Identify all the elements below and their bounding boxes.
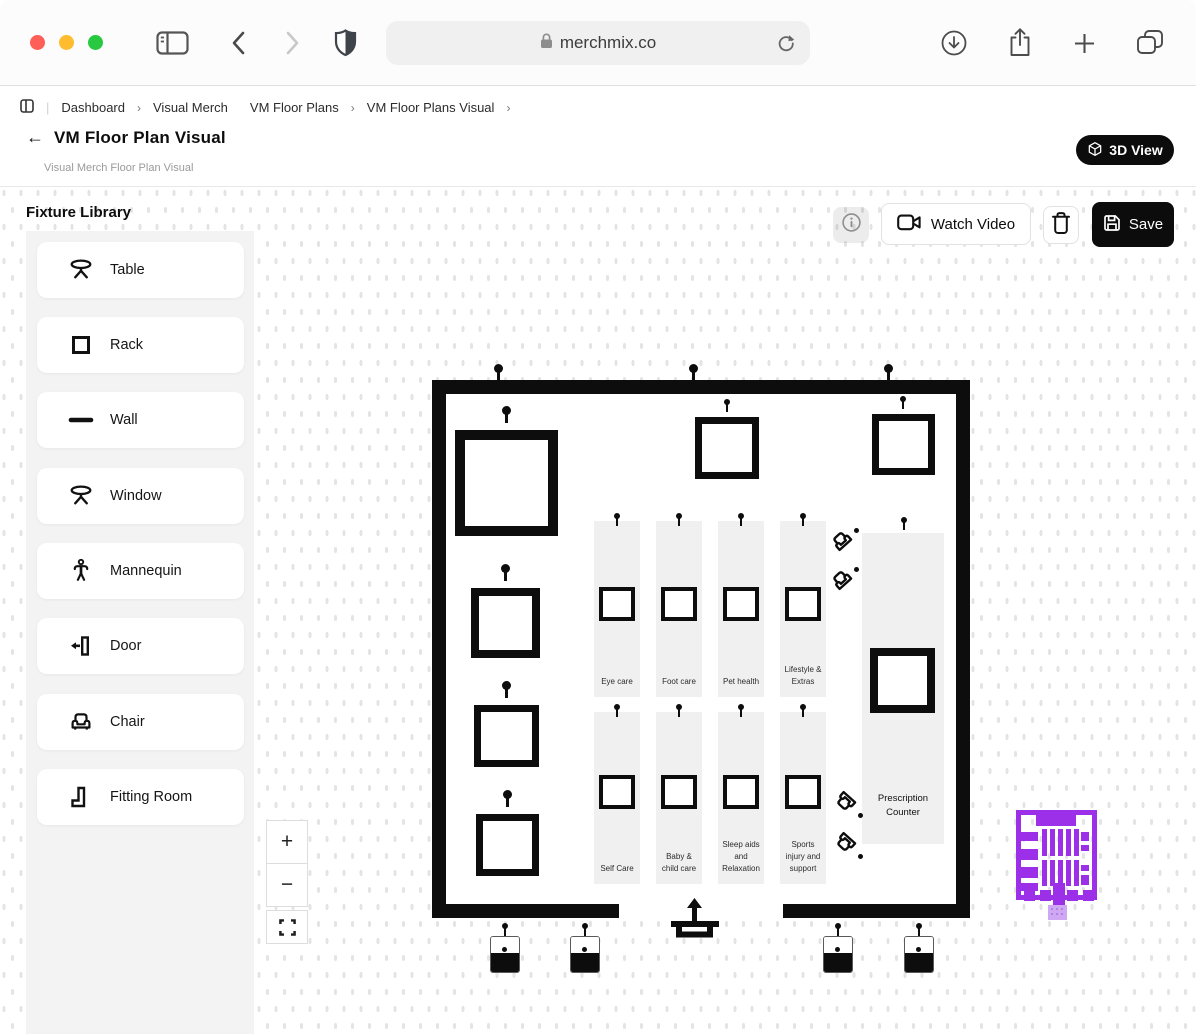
fixture-label: Chair bbox=[110, 714, 145, 730]
fixture-label: Rack bbox=[110, 337, 143, 353]
delete-button[interactable] bbox=[1043, 206, 1079, 244]
rack-fixture[interactable] bbox=[695, 417, 759, 479]
rack-fixture[interactable] bbox=[599, 587, 635, 621]
privacy-shield-icon[interactable] bbox=[334, 29, 357, 62]
fixture-pin[interactable] bbox=[916, 923, 922, 929]
breadcrumb-dashboard[interactable]: Dashboard bbox=[61, 100, 125, 115]
chair-fixture[interactable] bbox=[830, 530, 856, 556]
aisle-label: Self Care bbox=[595, 863, 639, 884]
wall-fixture-bottom-left[interactable] bbox=[432, 904, 619, 918]
door-icon bbox=[68, 634, 94, 658]
prescription-counter-label: Prescription Counter bbox=[861, 792, 945, 820]
canvas[interactable]: Fixture Library Table Rack Wall Window bbox=[0, 187, 1196, 1034]
table-icon bbox=[68, 257, 94, 283]
chevron-right-icon: › bbox=[351, 101, 355, 115]
back-arrow-icon[interactable]: ← bbox=[26, 127, 44, 148]
rack-fixture[interactable] bbox=[474, 705, 539, 767]
aisle-label: Sleep aids and Relaxation bbox=[719, 839, 763, 884]
url-text: merchmix.co bbox=[560, 33, 656, 53]
fixture-pin[interactable] bbox=[901, 517, 907, 523]
fixture-pin[interactable] bbox=[738, 704, 744, 710]
zoom-window-button[interactable] bbox=[88, 35, 103, 50]
rack-fixture[interactable] bbox=[785, 587, 821, 621]
aisle-label: Baby & child care bbox=[657, 851, 701, 884]
info-button[interactable] bbox=[833, 207, 869, 243]
chevron-right-icon: › bbox=[506, 101, 510, 115]
fixture-card-fitting-room[interactable]: Fitting Room bbox=[37, 769, 244, 825]
fixture-pin[interactable] bbox=[614, 513, 620, 519]
fixture-label: Table bbox=[110, 262, 145, 278]
rack-fixture[interactable] bbox=[599, 775, 635, 809]
fixture-pin[interactable] bbox=[835, 923, 841, 929]
door-fixture-entrance[interactable] bbox=[668, 896, 722, 945]
wall-fixture-top[interactable] bbox=[432, 380, 970, 394]
fixture-pin[interactable] bbox=[614, 704, 620, 710]
save-label: Save bbox=[1129, 216, 1163, 233]
save-button[interactable]: Save bbox=[1092, 202, 1174, 247]
fixture-pin[interactable] bbox=[501, 564, 510, 573]
fixture-pin[interactable] bbox=[494, 364, 503, 373]
rack-fixture[interactable] bbox=[661, 587, 697, 621]
address-bar[interactable]: merchmix.co bbox=[386, 21, 810, 65]
fixture-pin bbox=[858, 854, 863, 859]
watch-video-button[interactable]: Watch Video bbox=[881, 203, 1031, 245]
chair-icon bbox=[68, 710, 94, 734]
window-fixture[interactable] bbox=[904, 936, 934, 973]
rack-fixture[interactable] bbox=[661, 775, 697, 809]
zoom-in-button[interactable]: + bbox=[266, 820, 308, 864]
chair-fixture[interactable] bbox=[834, 831, 860, 857]
rack-fixture[interactable] bbox=[870, 648, 935, 713]
breadcrumb-visual-merch[interactable]: Visual Merch bbox=[153, 100, 228, 115]
fixture-pin bbox=[854, 528, 859, 533]
aisle-shelf[interactable]: Sports injury and support bbox=[780, 712, 826, 884]
wall-icon bbox=[68, 408, 94, 432]
fixture-pin[interactable] bbox=[884, 364, 893, 373]
fixture-pin[interactable] bbox=[502, 406, 511, 415]
chair-fixture[interactable] bbox=[834, 790, 860, 816]
wall-fixture-right[interactable] bbox=[956, 380, 970, 918]
wall-fixture-bottom-right[interactable] bbox=[783, 904, 970, 918]
forward-icon[interactable] bbox=[282, 30, 302, 61]
rack-fixture[interactable] bbox=[471, 588, 540, 658]
rack-fixture[interactable] bbox=[455, 430, 558, 536]
fixture-pin[interactable] bbox=[738, 513, 744, 519]
fixture-pin bbox=[854, 567, 859, 572]
chair-fixture[interactable] bbox=[830, 569, 856, 595]
aisle-label: Foot care bbox=[657, 676, 701, 697]
fixture-label: Door bbox=[110, 638, 141, 654]
close-window-button[interactable] bbox=[30, 35, 45, 50]
fixture-card-mannequin[interactable]: Mannequin bbox=[37, 543, 244, 599]
fixture-card-door[interactable]: Door bbox=[37, 618, 244, 674]
fixture-library-title: Fixture Library bbox=[26, 204, 131, 221]
aisle-label: Lifestyle & Extras bbox=[781, 664, 825, 697]
save-icon bbox=[1103, 214, 1121, 236]
window-fixture[interactable] bbox=[490, 936, 520, 973]
aisle-shelf[interactable]: Eye care bbox=[594, 521, 640, 697]
cube-icon bbox=[1087, 141, 1103, 160]
fixture-pin[interactable] bbox=[502, 681, 511, 690]
breadcrumb-vm-floor-plans-visual[interactable]: VM Floor Plans Visual bbox=[367, 100, 495, 115]
sidebar-toggle-icon[interactable] bbox=[156, 31, 189, 60]
tab-overview-icon[interactable] bbox=[1136, 29, 1164, 60]
aisle-shelf[interactable]: Foot care bbox=[656, 521, 702, 697]
chevron-right-icon: › bbox=[137, 101, 141, 115]
fixture-card-table[interactable]: Table bbox=[37, 242, 244, 298]
info-icon bbox=[841, 212, 862, 238]
window-icon bbox=[68, 483, 94, 509]
fixture-card-chair[interactable]: Chair bbox=[37, 694, 244, 750]
fixture-pin[interactable] bbox=[582, 923, 588, 929]
zoom-out-button[interactable]: − bbox=[266, 863, 308, 907]
zoom-controls: + − bbox=[266, 820, 308, 944]
rack-icon bbox=[68, 333, 94, 357]
fixture-pin[interactable] bbox=[724, 399, 730, 405]
back-icon[interactable] bbox=[229, 30, 249, 61]
fixture-pin[interactable] bbox=[689, 364, 698, 373]
fixture-card-wall[interactable]: Wall bbox=[37, 392, 244, 448]
fixture-pin[interactable] bbox=[676, 704, 682, 710]
lock-icon bbox=[540, 33, 553, 54]
window-pane-icon bbox=[20, 99, 34, 116]
aisle-label: Sports injury and support bbox=[781, 839, 825, 884]
rack-fixture[interactable] bbox=[723, 775, 759, 809]
fixture-label: Wall bbox=[110, 412, 138, 428]
mannequin-icon bbox=[68, 558, 94, 584]
window-fixture[interactable] bbox=[570, 936, 600, 973]
fixture-label: Fitting Room bbox=[110, 789, 192, 805]
window-fixture[interactable] bbox=[823, 936, 853, 973]
aisle-shelf[interactable]: Pet health bbox=[718, 521, 764, 697]
downloads-icon[interactable] bbox=[940, 29, 968, 62]
fixture-card-window[interactable]: Window bbox=[37, 468, 244, 524]
fixture-label: Mannequin bbox=[110, 563, 182, 579]
fitting-room-icon bbox=[68, 785, 94, 809]
new-tab-icon[interactable] bbox=[1072, 31, 1097, 61]
rack-fixture[interactable] bbox=[872, 414, 935, 475]
page-subtitle: Visual Merch Floor Plan Visual bbox=[44, 162, 193, 174]
minimap[interactable] bbox=[1014, 806, 1102, 927]
fixture-pin[interactable] bbox=[502, 923, 508, 929]
fullscreen-button[interactable] bbox=[266, 910, 308, 944]
aisle-shelf[interactable]: Lifestyle & Extras bbox=[780, 521, 826, 697]
aisle-shelf[interactable]: Baby & child care bbox=[656, 712, 702, 884]
wall-fixture-left[interactable] bbox=[432, 380, 446, 918]
watch-video-label: Watch Video bbox=[931, 216, 1015, 233]
view-3d-label: 3D View bbox=[1109, 142, 1162, 158]
video-camera-icon bbox=[897, 213, 922, 236]
aisle-shelf[interactable]: Sleep aids and Relaxation bbox=[718, 712, 764, 884]
breadcrumb-divider: | bbox=[46, 100, 49, 115]
fixture-pin[interactable] bbox=[676, 513, 682, 519]
refresh-icon[interactable] bbox=[776, 33, 796, 58]
trash-icon bbox=[1050, 210, 1072, 241]
fixture-pin[interactable] bbox=[503, 790, 512, 799]
aisle-shelf[interactable]: Self Care bbox=[594, 712, 640, 884]
fixture-pin bbox=[858, 813, 863, 818]
fixture-pin[interactable] bbox=[800, 513, 806, 519]
rack-fixture[interactable] bbox=[785, 775, 821, 809]
fixture-pin[interactable] bbox=[800, 704, 806, 710]
aisle-label: Eye care bbox=[595, 676, 639, 697]
fixture-label: Window bbox=[110, 488, 162, 504]
view-3d-button[interactable]: 3D View bbox=[1076, 135, 1174, 165]
minimize-window-button[interactable] bbox=[59, 35, 74, 50]
aisle-label: Pet health bbox=[719, 676, 763, 697]
share-icon[interactable] bbox=[1007, 27, 1033, 63]
fixture-pin[interactable] bbox=[900, 396, 906, 402]
browser-toolbar: merchmix.co bbox=[0, 0, 1196, 86]
breadcrumb-vm-floor-plans[interactable]: VM Floor Plans bbox=[250, 100, 339, 115]
rack-fixture[interactable] bbox=[723, 587, 759, 621]
page-title: VM Floor Plan Visual bbox=[54, 128, 226, 148]
fixture-library-panel: Table Rack Wall Window Mannequin bbox=[26, 231, 254, 1034]
breadcrumb: | Dashboard › Visual Merch VM Floor Plan… bbox=[20, 99, 510, 116]
rack-fixture[interactable] bbox=[476, 814, 539, 876]
fixture-card-rack[interactable]: Rack bbox=[37, 317, 244, 373]
